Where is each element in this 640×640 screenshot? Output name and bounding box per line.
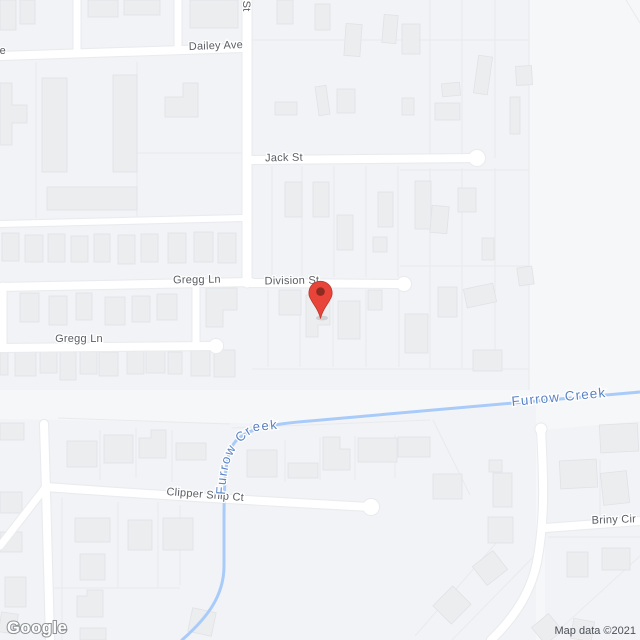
building — [488, 517, 513, 543]
pin-shadow — [316, 316, 328, 321]
building — [2, 233, 19, 261]
building — [113, 75, 137, 172]
building — [42, 78, 67, 172]
street-label-dailey-ave: Dailey Ave — [189, 39, 244, 53]
culdesac — [209, 339, 223, 353]
building — [493, 473, 512, 507]
building — [435, 103, 460, 120]
building — [510, 97, 520, 134]
building — [5, 577, 26, 607]
street-label-briny-cir: Briny Cir — [591, 513, 636, 527]
building — [0, 0, 16, 30]
street-label-vertical-st-partial: n St — [240, 0, 252, 12]
road — [0, 346, 213, 348]
building — [0, 423, 24, 440]
building — [94, 234, 110, 262]
building — [373, 237, 387, 252]
building — [275, 102, 297, 115]
building — [146, 350, 165, 373]
building — [433, 474, 462, 499]
building — [218, 233, 236, 263]
building — [60, 352, 76, 380]
building — [80, 554, 105, 580]
building — [458, 188, 476, 212]
building — [441, 82, 460, 97]
building — [67, 441, 97, 467]
building — [430, 205, 449, 233]
building — [398, 437, 430, 457]
building — [382, 14, 398, 43]
building — [277, 0, 293, 24]
building — [104, 435, 133, 463]
building — [602, 548, 630, 570]
building — [99, 352, 118, 376]
building — [105, 297, 125, 325]
building — [482, 238, 494, 260]
building — [20, 293, 39, 322]
building — [118, 235, 135, 264]
building — [402, 98, 414, 115]
building — [128, 520, 152, 550]
building — [157, 294, 177, 320]
building — [141, 234, 158, 262]
building — [47, 187, 137, 210]
street-label-gregg-ln-top: Gregg Ln — [173, 274, 221, 287]
building — [190, 0, 238, 28]
building — [285, 182, 302, 217]
building — [415, 181, 431, 229]
building — [567, 552, 588, 577]
culdesac — [536, 424, 547, 435]
building — [337, 89, 355, 113]
street-label-gregg-ln-bottom: Gregg Ln — [55, 333, 103, 345]
building — [600, 471, 629, 506]
map-attribution: Map data ©2021 — [555, 625, 637, 637]
building — [48, 234, 65, 262]
building — [71, 236, 88, 262]
building — [25, 235, 43, 262]
building — [214, 350, 235, 377]
building — [127, 350, 144, 374]
building — [80, 628, 106, 640]
culdesac — [363, 499, 379, 515]
building — [517, 266, 534, 286]
building — [132, 296, 150, 322]
building — [516, 66, 533, 86]
google-logo[interactable]: Google — [7, 619, 67, 637]
building — [176, 443, 206, 460]
building — [473, 350, 502, 371]
building — [76, 293, 92, 320]
building — [313, 182, 329, 217]
building — [124, 0, 160, 15]
building — [0, 492, 22, 513]
building — [20, 0, 35, 24]
building — [337, 215, 353, 250]
building — [378, 192, 393, 227]
building — [168, 233, 186, 263]
building — [599, 423, 638, 453]
culdesac — [397, 277, 411, 291]
building — [338, 301, 360, 339]
street-label-left-edge-fragment: e — [0, 45, 6, 57]
building — [368, 290, 382, 310]
building — [75, 518, 110, 542]
building — [315, 4, 330, 30]
building — [163, 518, 193, 550]
building — [438, 287, 457, 317]
building — [15, 350, 36, 376]
building — [49, 296, 67, 325]
culdesac — [469, 150, 485, 166]
building — [489, 460, 502, 472]
building — [191, 348, 210, 376]
building — [279, 290, 301, 315]
building — [559, 459, 597, 489]
building — [88, 0, 118, 17]
street-label-jack-st: Jack St — [265, 152, 303, 165]
building — [40, 350, 57, 373]
building — [344, 23, 362, 56]
building — [80, 350, 97, 374]
building — [194, 232, 213, 262]
building — [247, 450, 277, 477]
building — [405, 314, 428, 353]
building — [168, 352, 182, 374]
building — [358, 438, 397, 462]
pin-inner-dot — [316, 287, 325, 296]
building — [402, 24, 420, 54]
building — [288, 463, 318, 478]
map-canvas[interactable]: Dailey AveJack StGregg LnDivision StGreg… — [0, 0, 640, 640]
